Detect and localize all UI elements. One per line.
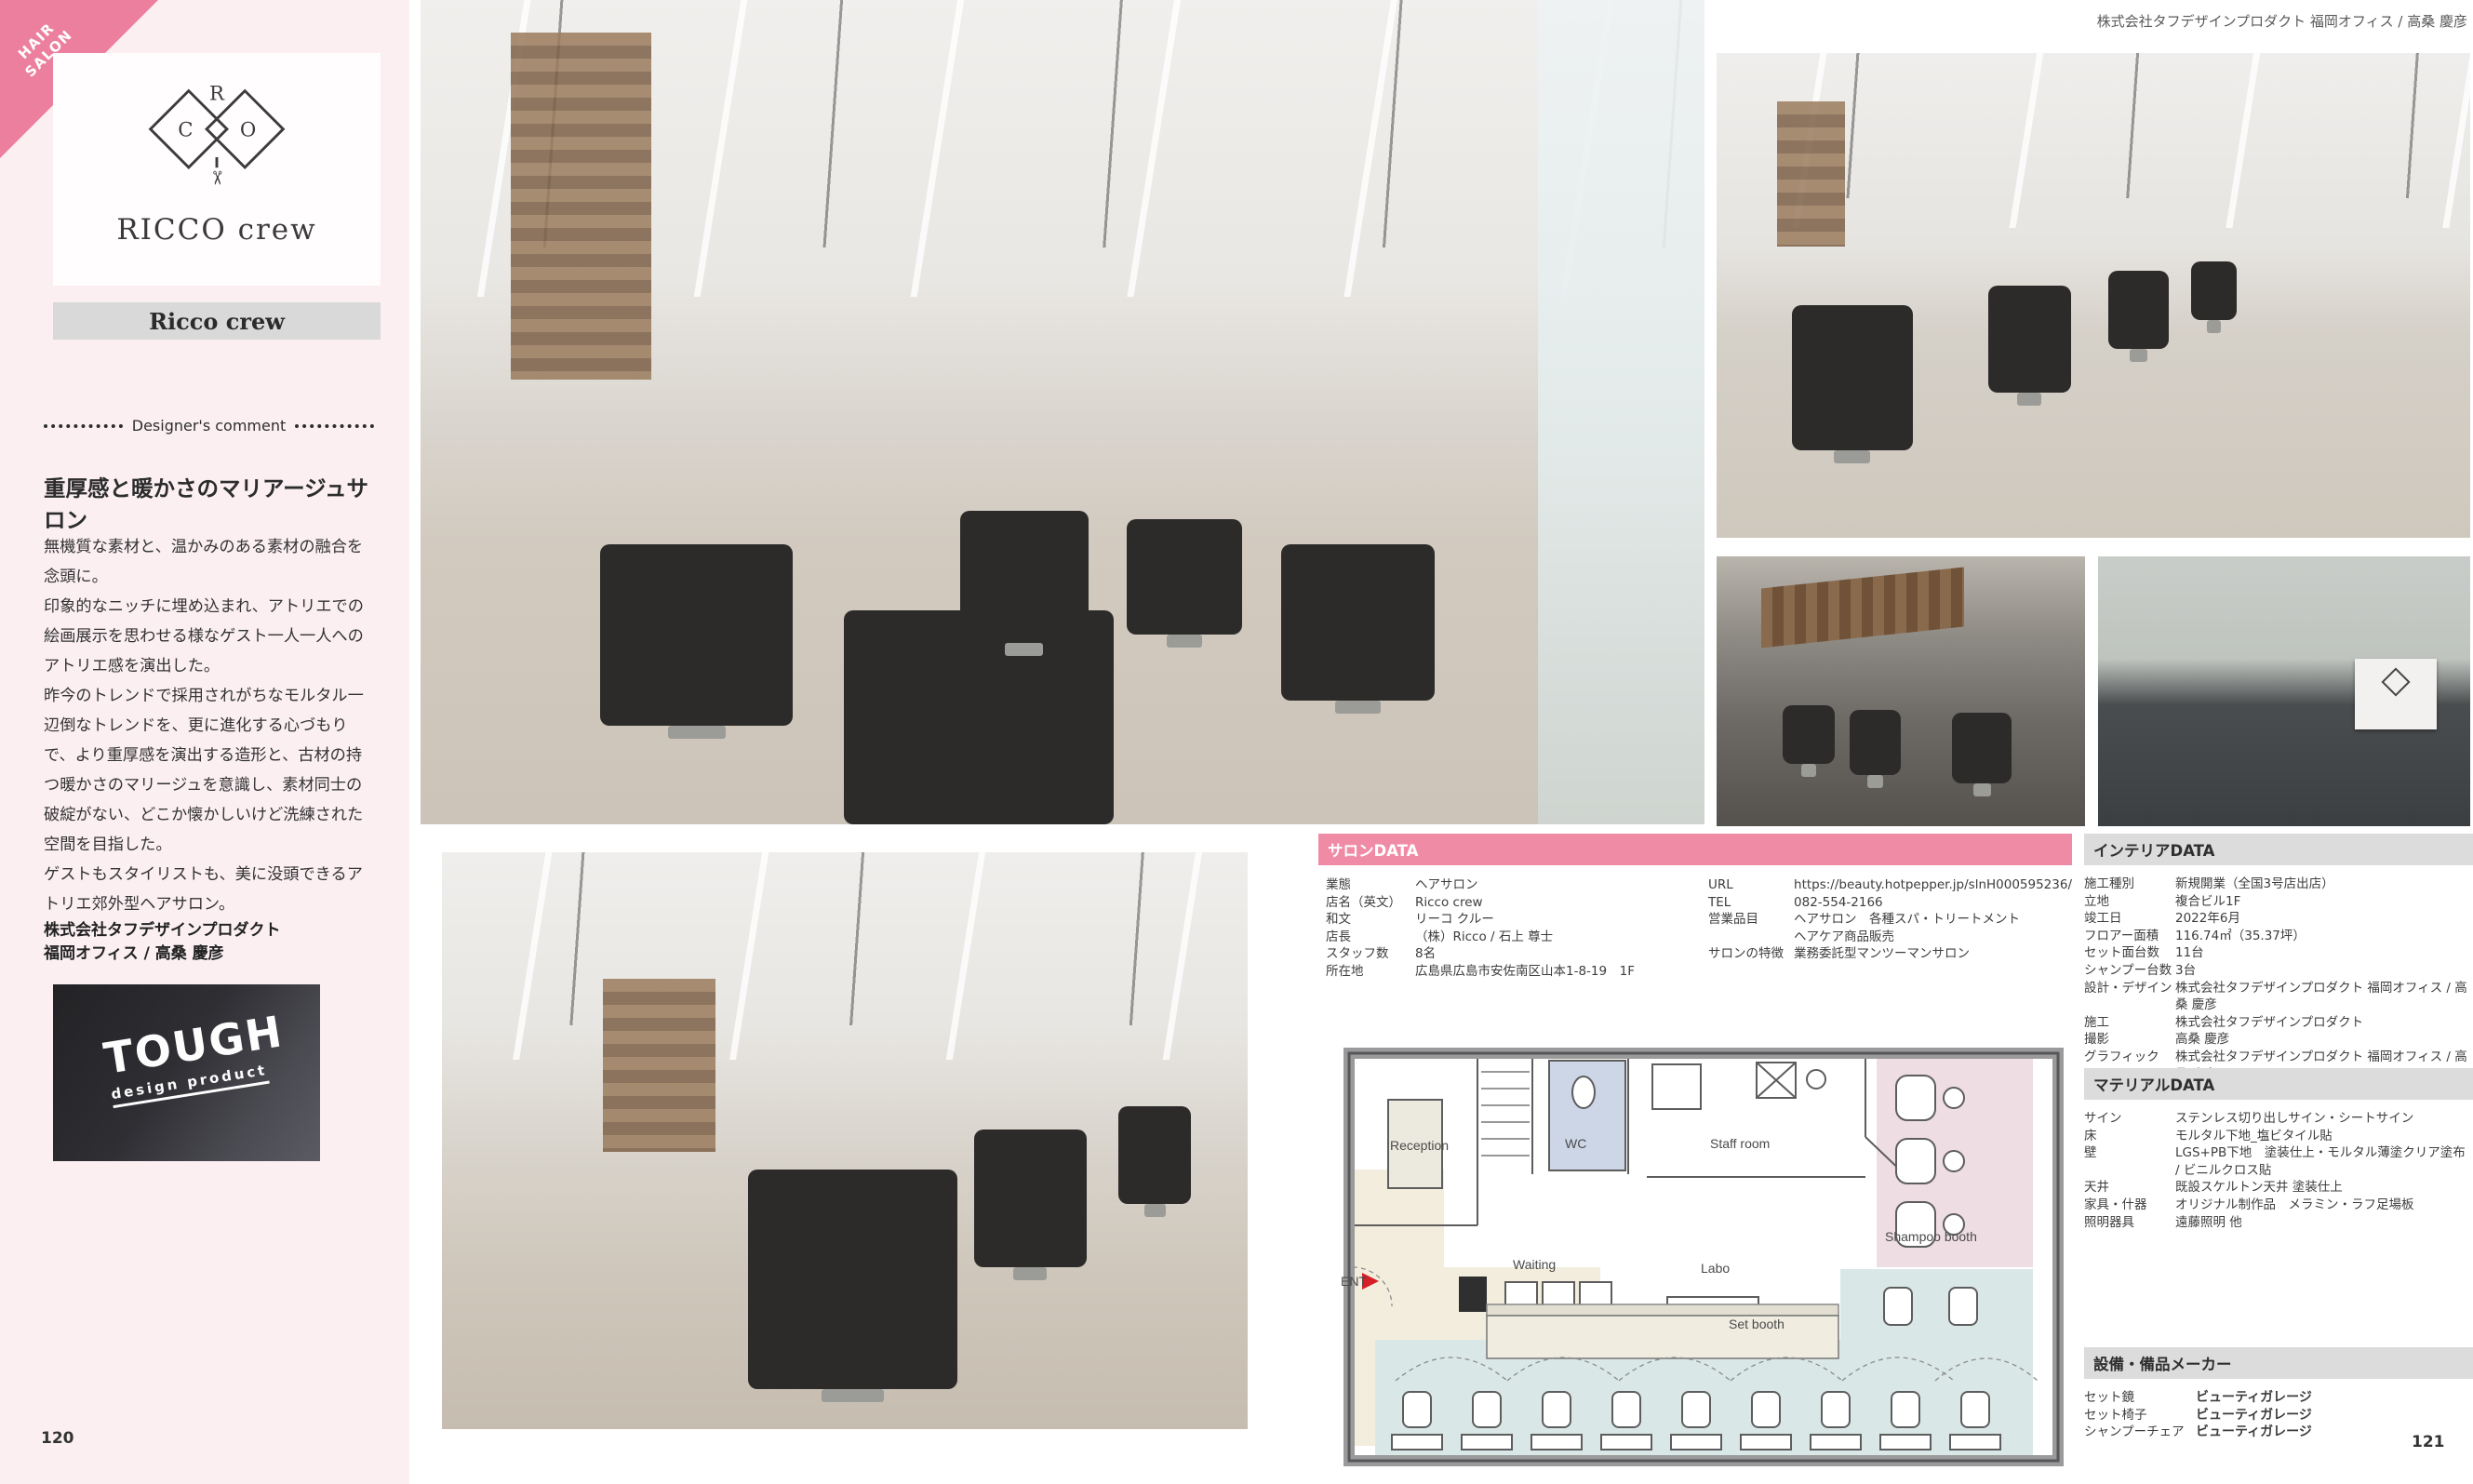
row-value: 高桑 慶彦 — [2175, 1031, 2473, 1049]
row-label: 業態 — [1326, 876, 1415, 894]
photo-right-top-interior — [1717, 53, 2470, 538]
row-label: 照明器具 — [2084, 1214, 2175, 1232]
material-data-section: マテリアルDATA サインステンレス切り出しサイン・シートサイン 床モルタル下地… — [2084, 1068, 2473, 1231]
page-number-right: 121 — [2412, 1433, 2445, 1451]
logo-title: RICCO crew — [53, 213, 381, 247]
row-label: 立地 — [2084, 893, 2175, 911]
comment-paragraph: ゲストもスタイリストも、美に没頭できるアトリエ郊外型ヘアサロン。 — [44, 860, 377, 919]
plan-label-entrance: ENT — [1341, 1274, 1367, 1289]
wood-panel-shape — [511, 33, 652, 379]
plan-label-shampoo-booth: Shampoo booth — [1885, 1229, 1977, 1244]
row-value: ビューティガレージ — [2196, 1407, 2473, 1424]
plan-plant — [1459, 1277, 1487, 1312]
chair-silhouette — [974, 1130, 1087, 1268]
ricco-crew-logo-icon: R C O ✂ — [139, 70, 295, 193]
row-value: ビューティガレージ — [2196, 1389, 2473, 1407]
row-value: 3台 — [2175, 962, 2473, 980]
logo-letter-o: O — [240, 119, 256, 142]
comment-paragraph: 昨今のトレンドで採用されがちなモルタル一辺倒なトレンドを、更に進化する心づもりで… — [44, 681, 377, 860]
comment-body: 無機質な素材と、温かみのある素材の融合を念頭に。 印象的なニッチに埋め込まれ、ア… — [44, 532, 377, 919]
salon-name-bar: Ricco crew — [53, 302, 381, 340]
chair-silhouette — [1952, 713, 2011, 782]
chair-silhouette — [1850, 710, 1901, 775]
row-label: セット面台数 — [2084, 944, 2175, 962]
row-value: ヘアサロン 各種スパ・トリートメント ヘアケア商品販売 — [1794, 911, 2072, 945]
designer-firm-line2: 福岡オフィス / 高桑 慶彦 — [44, 943, 281, 966]
exterior-signboard-shape — [2355, 659, 2437, 729]
salon-logo-box: R C O ✂ RICCO crew — [53, 53, 381, 286]
row-label: フロアー面積 — [2084, 928, 2175, 945]
logo-letter-c: C — [178, 119, 193, 142]
chair-silhouette — [2108, 271, 2169, 348]
chair-silhouette — [1783, 705, 1834, 765]
equipment-makers-table: セット鏡ビューティガレージ セット椅子ビューティガレージ シャンプーチェアビュー… — [2084, 1379, 2473, 1441]
plan-counter-hatch — [1487, 1304, 1838, 1316]
row-label: 営業品目 — [1708, 911, 1794, 945]
scissors-icon: ✂ — [206, 170, 228, 186]
row-label: サイン — [2084, 1110, 2175, 1128]
equipment-makers-header: 設備・備品メーカー — [2084, 1347, 2473, 1379]
photo-main-interior — [421, 0, 1704, 824]
magazine-spread: HAIR SALON R C O ✂ RICCO crew Ricco crew… — [0, 0, 2473, 1484]
designer-firm: 株式会社タフデザインプロダクト 福岡オフィス / 高桑 慶彦 — [44, 919, 281, 966]
dotted-divider-left — [44, 424, 123, 428]
row-label: 店名（英文） — [1326, 894, 1415, 912]
salon-tel: 082-554-2166 — [1794, 894, 2072, 912]
row-value: リーコ クルー — [1415, 911, 1708, 929]
plan-set-booth-chairs — [1392, 1392, 2000, 1450]
light-track-shape — [442, 852, 1248, 1025]
row-label: スタッフ数 — [1326, 945, 1415, 963]
comment-paragraph: 印象的なニッチに埋め込まれ、アトリエでの絵画展示を思わせる様なゲスト一人一人への… — [44, 592, 377, 681]
page-number-left: 120 — [41, 1429, 74, 1448]
row-value: 2022年6月 — [2175, 910, 2473, 928]
row-value: 業務委託型マンツーマンサロン — [1794, 945, 2072, 963]
chair-silhouette — [748, 1170, 957, 1389]
row-label: 施工種別 — [2084, 876, 2175, 893]
plan-shampoo-units — [1896, 1076, 1964, 1247]
plan-label-wc: WC — [1565, 1136, 1586, 1151]
floor-plan: ENT Reception WC Staff room Shampoo boot… — [1340, 1035, 2070, 1479]
chair-silhouette — [600, 544, 793, 726]
row-label: TEL — [1708, 894, 1794, 912]
row-value: 116.74㎡（35.37坪） — [2175, 928, 2473, 945]
row-value: ステンレス切り出しサイン・シートサイン — [2175, 1110, 2473, 1128]
row-value: 8名 — [1415, 945, 1708, 963]
chair-silhouette — [1281, 544, 1436, 701]
row-value: 11台 — [2175, 944, 2473, 962]
wood-panel-shape — [603, 979, 715, 1152]
material-data-table: サインステンレス切り出しサイン・シートサイン 床モルタル下地_塩ビタイル貼 壁L… — [2084, 1100, 2473, 1231]
row-value: モルタル下地_塩ビタイル貼 — [2175, 1128, 2473, 1145]
row-label: 壁 — [2084, 1144, 2175, 1179]
row-label: 所在地 — [1326, 963, 1415, 981]
row-label: 店長 — [1326, 929, 1415, 946]
row-label: セット鏡 — [2084, 1389, 2196, 1407]
salon-data-header: サロンDATA — [1318, 834, 2072, 865]
photo-credit: 株式会社タフデザインプロダクト 福岡オフィス / 高桑 慶彦 — [2097, 11, 2467, 31]
salon-data-left-column: 業態ヘアサロン 店名（英文）Ricco crew 和文リーコ クルー 店長（株）… — [1326, 876, 1708, 981]
chair-silhouette — [1118, 1106, 1191, 1204]
row-label: サロンの特徴 — [1708, 945, 1794, 963]
row-value: 広島県広島市安佐南区山本1-8-19 1F — [1415, 963, 1708, 981]
row-value: 新規開業（全国3号店出店） — [2175, 876, 2473, 893]
row-value: 株式会社タフデザインプロダクト 福岡オフィス / 高桑 慶彦 — [2175, 980, 2473, 1014]
row-label: 床 — [2084, 1128, 2175, 1145]
chair-silhouette — [1988, 286, 2071, 393]
wood-panel-shape — [1777, 101, 1845, 247]
row-value: オリジナル制作品 メラミン・ラフ足場板 — [2175, 1197, 2473, 1214]
row-value: （株）Ricco / 石上 尊士 — [1415, 929, 1708, 946]
photo-bottom-left-interior — [442, 852, 1248, 1429]
row-value: 既設スケルトン天井 塗装仕上 — [2175, 1179, 2473, 1197]
row-label: 和文 — [1326, 911, 1415, 929]
row-label: セット椅子 — [2084, 1407, 2196, 1424]
row-value: 複合ビル1F — [2175, 893, 2473, 911]
row-value: 株式会社タフデザインプロダクト — [2175, 1014, 2473, 1032]
row-value: LGS+PB下地 塗装仕上・モルタル薄塗クリア塗布 / ビニルクロス貼 — [2175, 1144, 2473, 1179]
salon-data-table: 業態ヘアサロン 店名（英文）Ricco crew 和文リーコ クルー 店長（株）… — [1318, 865, 2072, 981]
plan-label-staff-room: Staff room — [1710, 1136, 1770, 1151]
equipment-makers-section: 設備・備品メーカー セット鏡ビューティガレージ セット椅子ビューティガレージ シ… — [2084, 1347, 2473, 1441]
sidebar: HAIR SALON R C O ✂ RICCO crew Ricco crew… — [0, 0, 409, 1484]
plan-label-reception: Reception — [1390, 1138, 1449, 1153]
interior-data-header: インテリアDATA — [2084, 834, 2473, 865]
photo-exterior — [2098, 556, 2470, 826]
row-value: ヘアサロン — [1415, 876, 1708, 894]
designer-firm-line1: 株式会社タフデザインプロダクト — [44, 919, 281, 943]
row-label: 竣工日 — [2084, 910, 2175, 928]
interior-data-section: インテリアDATA 施工種別新規開業（全国3号店出店） 立地複合ビル1F 竣工日… — [2084, 834, 2473, 1083]
row-value: 遠藤照明 他 — [2175, 1214, 2473, 1232]
photo-tough-sign: TOUGH design product — [53, 984, 320, 1161]
salon-data-section: サロンDATA 業態ヘアサロン 店名（英文）Ricco crew 和文リーコ ク… — [1318, 834, 2072, 981]
plan-label-set-booth: Set booth — [1729, 1317, 1785, 1331]
salon-url[interactable]: https://beauty.hotpepper.jp/slnH00059523… — [1794, 876, 2072, 894]
comment-title: 重厚感と暖かさのマリアージュサロン — [44, 471, 388, 534]
row-label: 撮影 — [2084, 1031, 2175, 1049]
glass-wall-shape — [1538, 0, 1704, 824]
material-data-header: マテリアルDATA — [2084, 1068, 2473, 1100]
row-label: 施工 — [2084, 1014, 2175, 1032]
dotted-divider-right — [295, 424, 374, 428]
chair-silhouette — [2191, 261, 2237, 320]
row-label: 天井 — [2084, 1179, 2175, 1197]
interior-data-table: 施工種別新規開業（全国3号店出店） 立地複合ビル1F 竣工日2022年6月 フロ… — [2084, 865, 2473, 1083]
chair-silhouette — [1792, 305, 1913, 450]
chair-silhouette — [960, 511, 1089, 643]
plan-label-waiting: Waiting — [1513, 1257, 1556, 1272]
wood-ceiling-shape — [1761, 568, 1964, 648]
photo-shampoo-room — [1717, 556, 2085, 826]
plan-label-labo: Labo — [1701, 1261, 1730, 1276]
salon-data-right-column: URLhttps://beauty.hotpepper.jp/slnH00059… — [1708, 876, 2072, 981]
row-label: 家具・什器 — [2084, 1197, 2175, 1214]
plan-center-counter — [1487, 1316, 1838, 1358]
row-label: シャンプーチェア — [2084, 1424, 2196, 1441]
logo-letter-r: R — [209, 82, 225, 105]
row-value: Ricco crew — [1415, 894, 1708, 912]
chair-silhouette — [1127, 519, 1242, 635]
comment-paragraph: 無機質な素材と、温かみのある素材の融合を念頭に。 — [44, 532, 377, 592]
designers-comment-label: Designer's comment — [132, 417, 287, 435]
plan-toilet — [1572, 1076, 1595, 1108]
row-label: URL — [1708, 876, 1794, 894]
row-label: 設計・デザイン — [2084, 980, 2175, 1014]
designers-comment-header: Designer's comment — [44, 417, 374, 435]
row-label: シャンプー台数 — [2084, 962, 2175, 980]
